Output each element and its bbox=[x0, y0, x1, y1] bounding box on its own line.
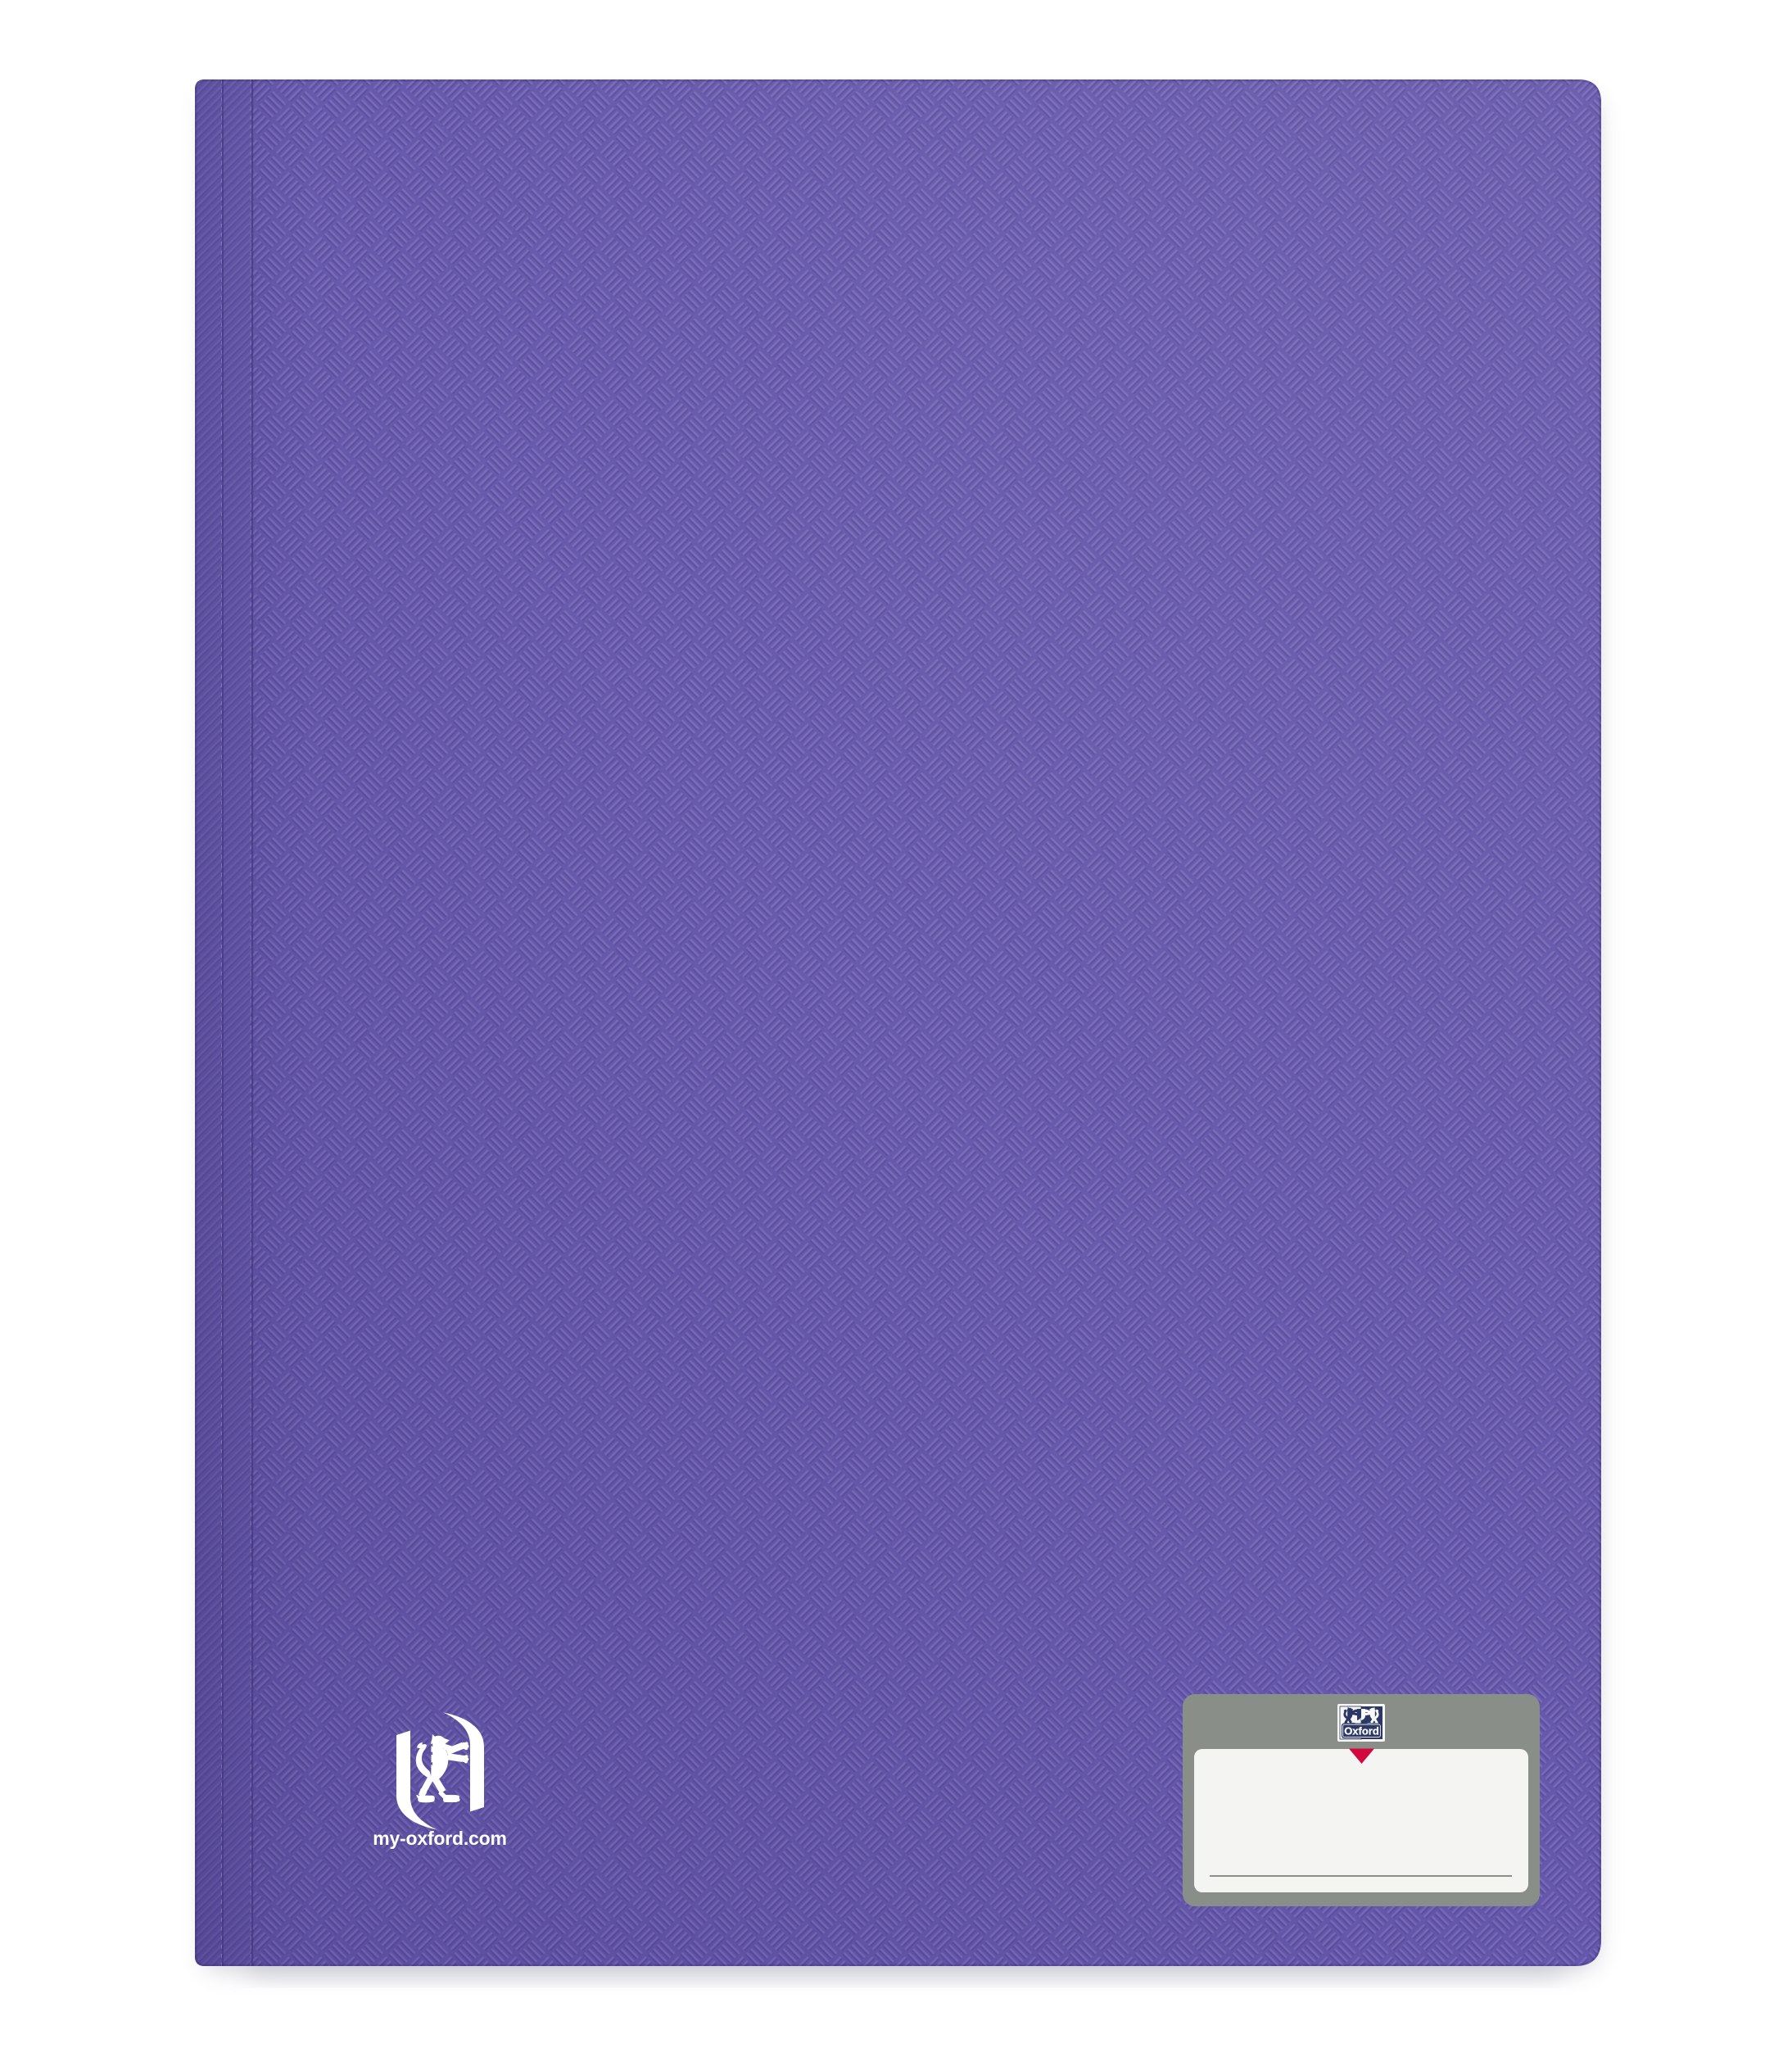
svg-text:my-oxford.com: my-oxford.com bbox=[373, 1828, 507, 1849]
